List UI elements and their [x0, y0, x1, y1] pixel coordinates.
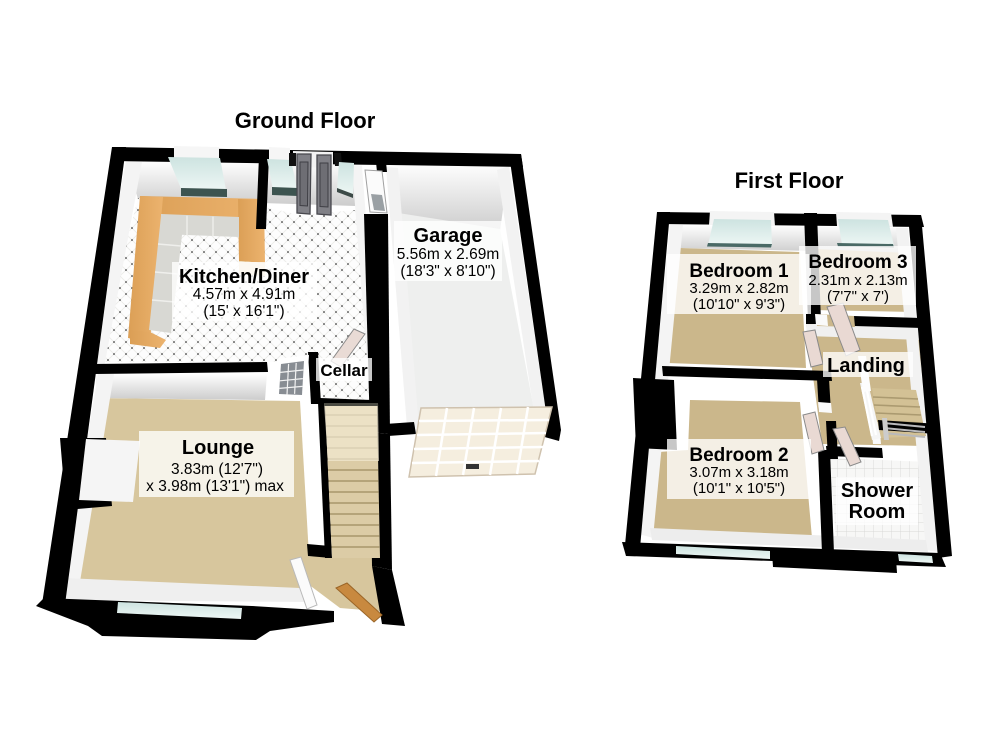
svg-text:x 3.98m (13'1") max: x 3.98m (13'1") max: [146, 478, 284, 495]
svg-text:Bedroom 3: Bedroom 3: [808, 252, 907, 273]
svg-text:Cellar: Cellar: [320, 361, 368, 380]
svg-text:5.56m x 2.69m: 5.56m x 2.69m: [397, 246, 500, 263]
svg-text:(10'10" x 9'3"): (10'10" x 9'3"): [693, 296, 785, 313]
svg-text:Bedroom 1: Bedroom 1: [689, 261, 789, 282]
svg-text:(18'3" x 8'10"): (18'3" x 8'10"): [400, 263, 495, 280]
svg-text:4.57m x 4.91m: 4.57m x 4.91m: [193, 286, 296, 303]
svg-text:(7'7" x 7'): (7'7" x 7'): [827, 288, 889, 305]
svg-text:Bedroom 2: Bedroom 2: [689, 445, 788, 466]
svg-text:First Floor: First Floor: [735, 168, 844, 193]
svg-text:Room: Room: [849, 501, 906, 523]
svg-text:3.29m x 2.82m: 3.29m x 2.82m: [689, 280, 788, 297]
svg-text:Ground Floor: Ground Floor: [235, 108, 376, 133]
svg-text:Lounge: Lounge: [182, 437, 254, 459]
svg-text:2.31m x 2.13m: 2.31m x 2.13m: [808, 272, 907, 289]
svg-text:Shower: Shower: [841, 480, 913, 502]
svg-text:(15' x 16'1"): (15' x 16'1"): [203, 303, 284, 320]
svg-text:3.07m x 3.18m: 3.07m x 3.18m: [689, 464, 788, 481]
svg-text:Kitchen/Diner: Kitchen/Diner: [179, 266, 309, 288]
svg-text:Garage: Garage: [414, 225, 483, 247]
svg-text:3.83m (12'7"): 3.83m (12'7"): [171, 461, 263, 478]
svg-text:Landing: Landing: [827, 355, 905, 377]
svg-text:(10'1" x 10'5"): (10'1" x 10'5"): [693, 480, 785, 497]
